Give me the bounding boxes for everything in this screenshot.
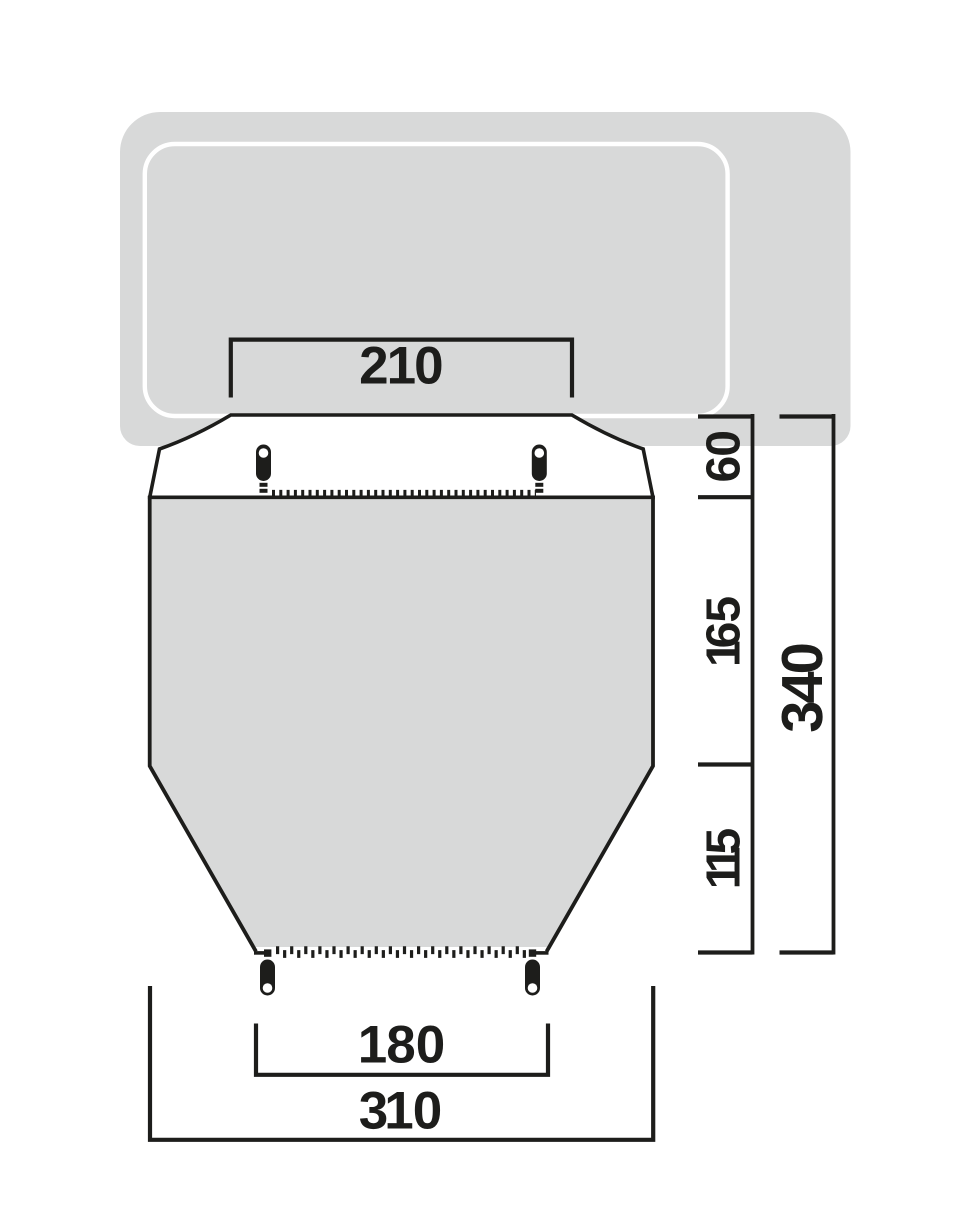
svg-text:210: 210 (359, 337, 443, 396)
svg-text:115: 115 (698, 828, 751, 889)
svg-text:165: 165 (698, 596, 751, 667)
svg-text:180: 180 (358, 1016, 445, 1075)
svg-text:310: 310 (359, 1082, 442, 1141)
svg-text:340: 340 (770, 644, 835, 733)
svg-text:60: 60 (698, 431, 751, 482)
